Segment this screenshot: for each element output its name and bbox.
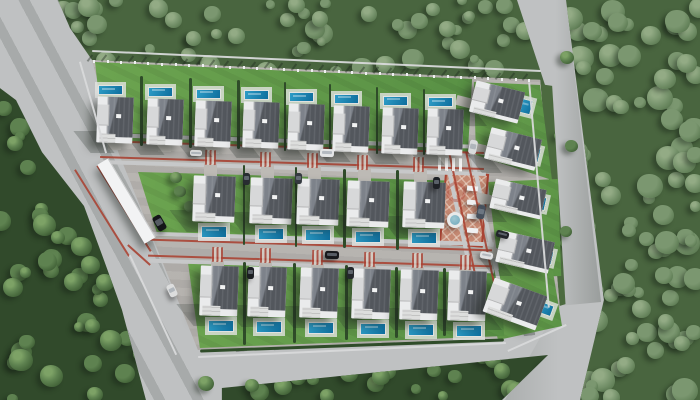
- tree: [186, 31, 201, 46]
- tree: [429, 353, 438, 362]
- skylight: [319, 197, 324, 201]
- car: [247, 267, 254, 279]
- pool-water-highlight: [365, 326, 378, 328]
- fence-post: [175, 63, 177, 66]
- house-wing-roof: [288, 112, 300, 134]
- terrace: [302, 307, 320, 318]
- tree: [72, 93, 88, 108]
- pool: [289, 92, 314, 102]
- terrace: [197, 137, 214, 147]
- pool-water-highlight: [213, 323, 226, 325]
- terrace: [290, 140, 307, 150]
- pool-water-highlight: [200, 91, 213, 93]
- tree: [372, 368, 390, 385]
- car: [295, 173, 302, 184]
- skylight: [514, 146, 520, 151]
- tree: [87, 15, 107, 34]
- tree: [20, 160, 36, 175]
- tree: [539, 360, 558, 378]
- tree: [411, 384, 421, 394]
- tree: [626, 332, 639, 344]
- terrace: [429, 145, 446, 155]
- house-wing-roof: [382, 115, 394, 137]
- house: [296, 178, 340, 225]
- house: [299, 267, 339, 318]
- tree: [37, 104, 57, 123]
- fence-post: [338, 70, 340, 73]
- house-wing-roof: [97, 105, 109, 127]
- fence-post: [243, 66, 245, 69]
- house-wing-roof: [333, 113, 345, 135]
- hedge: [293, 263, 296, 342]
- tree: [563, 189, 584, 209]
- pool-water-highlight: [102, 88, 115, 90]
- fence-post: [501, 78, 503, 81]
- fence-post: [283, 68, 285, 71]
- tree: [71, 237, 91, 256]
- house-wing-roof: [352, 277, 365, 300]
- terrace: [402, 309, 420, 320]
- fence-post: [419, 74, 421, 77]
- skylight: [369, 198, 374, 202]
- tree: [690, 201, 700, 212]
- tree: [613, 100, 628, 115]
- tree: [674, 336, 690, 351]
- tree: [665, 10, 689, 33]
- pool-water-highlight: [310, 232, 323, 234]
- fence-post: [147, 62, 149, 65]
- tree: [7, 394, 18, 400]
- pool: [308, 322, 334, 334]
- house-wing-roof: [448, 279, 461, 302]
- car-windshield: [348, 270, 353, 274]
- tree: [290, 370, 306, 385]
- tree: [71, 21, 84, 33]
- tree: [634, 97, 646, 109]
- house: [447, 270, 487, 321]
- house: [381, 107, 419, 154]
- terrace: [196, 212, 216, 222]
- fence-post: [270, 67, 272, 70]
- pool-water-highlight: [313, 325, 326, 327]
- tree: [677, 54, 697, 73]
- house: [399, 269, 439, 320]
- terrace: [300, 215, 320, 225]
- house: [194, 100, 232, 147]
- tree: [419, 349, 433, 362]
- fence-post: [515, 78, 517, 81]
- skylight: [320, 287, 325, 291]
- house-wing-roof: [347, 188, 361, 210]
- fence-post: [433, 75, 435, 78]
- tree: [583, 309, 608, 332]
- car: [433, 177, 440, 189]
- tree: [85, 319, 100, 333]
- pool-water-highlight: [248, 93, 261, 95]
- house-wing-roof: [400, 278, 413, 301]
- car-windshield: [497, 232, 507, 237]
- fence-post: [120, 61, 122, 64]
- fence-post: [202, 64, 204, 67]
- house-wing-roof: [403, 190, 417, 212]
- tree: [70, 85, 84, 94]
- tree: [3, 278, 23, 297]
- skylight: [214, 118, 219, 122]
- tree: [274, 378, 292, 395]
- pool: [360, 323, 386, 335]
- tree: [608, 13, 628, 32]
- fence-post: [487, 77, 489, 80]
- pool-water-highlight: [360, 234, 373, 236]
- house-roof: [358, 180, 390, 221]
- tree: [596, 68, 614, 85]
- terrace: [245, 139, 262, 149]
- skylight: [526, 248, 532, 253]
- skylight: [262, 120, 267, 124]
- house-wing-roof: [427, 117, 439, 139]
- tree: [617, 357, 635, 374]
- tree: [654, 69, 676, 90]
- driveway-crossing: [260, 152, 272, 167]
- tree: [245, 379, 259, 392]
- pool: [411, 232, 437, 244]
- tree: [647, 342, 664, 358]
- tree: [595, 172, 611, 187]
- fence-post: [93, 60, 95, 63]
- tree: [439, 21, 456, 37]
- house: [351, 268, 391, 319]
- terrace: [335, 142, 352, 152]
- car: [325, 251, 339, 259]
- skylight: [215, 194, 220, 198]
- tree: [64, 273, 83, 291]
- fence-post: [134, 61, 136, 64]
- house-wing-roof: [200, 274, 213, 297]
- tree: [426, 3, 440, 16]
- tree: [0, 101, 12, 116]
- tree: [478, 0, 493, 14]
- skylight: [166, 116, 171, 120]
- tree: [658, 314, 674, 330]
- pool: [201, 226, 227, 238]
- terrace: [384, 144, 401, 154]
- tree: [263, 367, 280, 383]
- tree: [133, 346, 148, 361]
- tree: [603, 389, 620, 400]
- tree: [411, 13, 428, 29]
- house-roof: [261, 177, 293, 218]
- skylight: [268, 286, 273, 290]
- house: [346, 180, 390, 227]
- tree: [679, 121, 700, 142]
- skylight: [116, 114, 121, 118]
- tree: [56, 28, 74, 45]
- driveway-crossing: [364, 252, 376, 267]
- tree: [81, 256, 99, 273]
- tree: [576, 148, 591, 162]
- tree: [562, 250, 583, 270]
- tree: [340, 365, 358, 382]
- tree: [87, 387, 103, 400]
- tree: [392, 19, 404, 31]
- fence-post: [406, 73, 408, 76]
- tree: [601, 186, 621, 205]
- tree: [321, 355, 335, 368]
- tree: [74, 53, 83, 62]
- tree: [448, 370, 461, 383]
- tree: [96, 274, 114, 291]
- tree: [662, 290, 679, 306]
- tree: [507, 382, 525, 399]
- tree: [576, 241, 589, 253]
- house-roof: [204, 176, 236, 217]
- tree: [450, 40, 470, 59]
- fountain: [447, 212, 463, 228]
- pool: [428, 97, 453, 107]
- pool-water-highlight: [338, 96, 351, 98]
- tree: [149, 0, 168, 18]
- tree: [438, 391, 448, 400]
- pool-water-highlight: [432, 100, 445, 102]
- tree: [494, 363, 510, 378]
- skylight: [425, 200, 430, 204]
- terrace: [354, 308, 372, 319]
- tree: [632, 300, 651, 318]
- skylight: [307, 122, 312, 126]
- tree: [560, 114, 575, 132]
- pool: [408, 324, 434, 336]
- house: [426, 109, 464, 156]
- pool: [196, 89, 221, 99]
- skylight: [446, 127, 451, 131]
- tree: [581, 387, 599, 400]
- tree: [280, 13, 295, 28]
- pool: [355, 231, 381, 243]
- tree: [320, 0, 330, 8]
- tree: [625, 259, 638, 272]
- car-windshield: [327, 253, 338, 256]
- house: [192, 175, 236, 222]
- terrace: [253, 214, 273, 224]
- tree: [581, 280, 605, 302]
- car: [243, 173, 250, 185]
- pool: [208, 320, 234, 332]
- tree: [576, 218, 596, 237]
- fence-post: [215, 65, 217, 68]
- pool-water-highlight: [416, 235, 429, 237]
- house: [332, 105, 370, 152]
- tree: [560, 66, 573, 85]
- pool-water-highlight: [152, 89, 165, 91]
- pool: [98, 85, 123, 95]
- pool: [256, 321, 282, 333]
- tree: [622, 224, 636, 237]
- fence-post: [161, 63, 163, 66]
- tree: [653, 205, 674, 225]
- terrace: [406, 218, 426, 228]
- car-windshield: [322, 151, 333, 154]
- skylight: [468, 290, 473, 294]
- house-roof: [308, 179, 340, 220]
- skylight: [372, 288, 377, 292]
- tree: [641, 26, 661, 45]
- skylight: [519, 196, 525, 201]
- tree: [568, 154, 588, 173]
- tree: [9, 349, 33, 372]
- tree: [361, 6, 377, 21]
- tree: [256, 362, 267, 372]
- tree: [266, 0, 275, 9]
- tree: [684, 268, 700, 290]
- fence-post: [460, 76, 462, 79]
- tree: [563, 358, 570, 370]
- forest-right: [560, 0, 700, 400]
- car-windshield: [248, 270, 253, 274]
- tree: [165, 12, 182, 28]
- fence-post: [474, 76, 476, 79]
- tree: [211, 29, 222, 39]
- tree: [672, 378, 698, 400]
- car-windshield: [470, 143, 477, 149]
- tree: [402, 49, 423, 69]
- tree: [7, 136, 23, 151]
- tree: [685, 174, 700, 193]
- house-wing-roof: [147, 106, 159, 128]
- car-windshield: [191, 152, 200, 154]
- pool-water-highlight: [261, 324, 274, 326]
- driveway-crossing: [260, 248, 272, 263]
- car-windshield: [168, 287, 175, 294]
- tree: [54, 117, 68, 131]
- fence-post: [392, 73, 394, 76]
- tree: [578, 270, 596, 287]
- car-windshield: [434, 180, 439, 184]
- terrace: [202, 305, 220, 316]
- skylight: [352, 123, 357, 127]
- tree: [613, 273, 635, 294]
- tree: [583, 22, 602, 40]
- tree: [560, 367, 572, 379]
- fence-post: [447, 75, 449, 78]
- tree: [115, 364, 135, 383]
- car-windshield: [155, 218, 164, 226]
- fence-post: [351, 71, 353, 74]
- house-wing-roof: [297, 187, 311, 209]
- tree: [560, 239, 568, 247]
- pool: [244, 90, 269, 100]
- house: [199, 265, 239, 316]
- tree: [655, 231, 679, 254]
- driveway-crossing: [212, 247, 224, 262]
- house-wing-roof: [193, 184, 207, 206]
- house: [249, 177, 293, 224]
- car: [190, 150, 202, 156]
- driveway-crossing: [307, 153, 319, 168]
- tree: [51, 231, 65, 244]
- tree: [40, 365, 64, 387]
- tree: [554, 342, 570, 361]
- tree: [516, 22, 535, 40]
- fence-post: [311, 69, 313, 72]
- pergola-bench: [467, 228, 478, 234]
- hedge: [243, 262, 246, 345]
- car: [347, 267, 354, 279]
- house: [146, 98, 184, 145]
- house: [287, 103, 325, 150]
- tree: [64, 45, 74, 54]
- tree: [320, 389, 334, 400]
- pool-water-highlight: [413, 327, 426, 329]
- tree: [0, 211, 11, 230]
- tree: [637, 174, 662, 198]
- tree: [109, 0, 123, 7]
- car-windshield: [296, 176, 301, 180]
- house-wing-roof: [300, 276, 313, 299]
- fence-post: [107, 60, 109, 63]
- terrace: [149, 135, 166, 145]
- fence-post: [256, 67, 258, 70]
- pool-water-highlight: [522, 102, 528, 105]
- tree: [100, 330, 122, 350]
- house-wing-roof: [250, 185, 264, 207]
- tree: [198, 376, 214, 391]
- fence-post: [229, 66, 231, 69]
- terrace: [250, 306, 268, 317]
- tree: [38, 252, 58, 271]
- skylight: [420, 289, 425, 293]
- tree: [70, 99, 92, 120]
- tree: [74, 322, 85, 332]
- tree: [560, 154, 574, 177]
- tree: [20, 267, 31, 277]
- pool-water-highlight: [387, 98, 400, 100]
- pool-water-highlight: [263, 231, 276, 233]
- skylight: [272, 195, 277, 199]
- house-wing-roof: [243, 110, 255, 132]
- tree: [204, 6, 221, 22]
- tree: [560, 97, 568, 105]
- fence-post: [188, 64, 190, 67]
- pool: [456, 325, 482, 337]
- house-wing-roof: [195, 108, 207, 130]
- terrace: [350, 217, 370, 227]
- tree: [45, 92, 62, 108]
- tree: [668, 172, 685, 188]
- tree: [565, 140, 578, 152]
- tree: [307, 374, 318, 385]
- house-roof: [414, 182, 446, 223]
- tree: [647, 86, 672, 110]
- fence-post: [528, 79, 530, 82]
- driveway-crossing: [460, 254, 472, 269]
- skylight: [498, 99, 504, 104]
- pool: [148, 87, 173, 97]
- tree: [576, 61, 591, 75]
- tree: [457, 0, 467, 5]
- tree: [639, 232, 654, 246]
- tree: [84, 355, 102, 372]
- fence-post: [365, 72, 367, 75]
- car-windshield: [244, 176, 249, 180]
- terrace: [450, 310, 468, 321]
- house: [402, 182, 446, 229]
- tree: [689, 0, 700, 18]
- tree: [637, 323, 656, 341]
- pool: [383, 96, 408, 106]
- tree: [560, 51, 574, 64]
- pool: [258, 228, 284, 240]
- tree: [568, 311, 583, 325]
